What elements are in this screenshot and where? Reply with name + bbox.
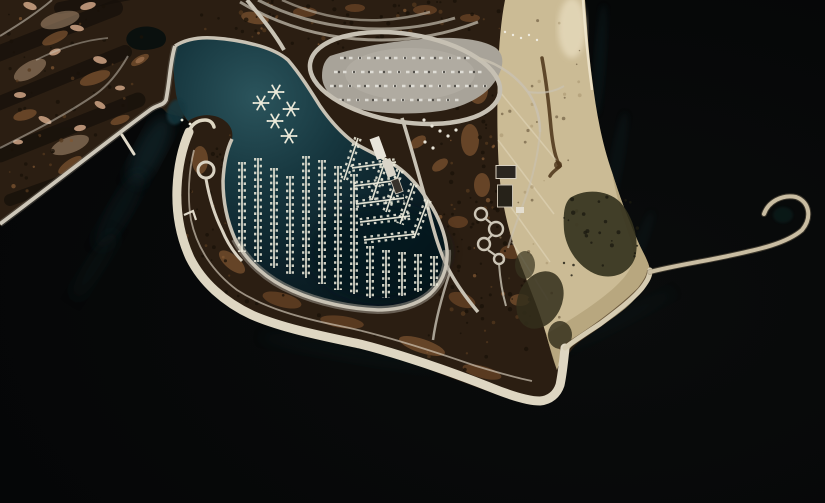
shrub-speckle [583,231,587,235]
vegetation-speckle [461,311,466,316]
sand-speckle [526,129,529,132]
vegetation-speckle [56,100,60,104]
vegetation-speckle [85,19,87,21]
vegetation-speckle [262,28,266,32]
shelter-dot [431,146,434,149]
vegetation-speckle [229,134,231,136]
vegetation-speckle [282,294,285,297]
vegetation-speckle [439,1,441,3]
star-dock-finger [283,108,285,110]
vegetation-speckle [196,208,198,210]
shelter-dot [422,118,425,121]
vegetation-speckle [18,108,22,112]
shrub-speckle [571,274,573,276]
vegetation-speckle [77,72,80,75]
vegetation-speckle [499,28,501,30]
beach-dot [528,34,530,36]
shrub-speckle [570,197,574,201]
beach-pavilion-1 [496,166,516,179]
vegetation-speckle [483,18,485,20]
sand-speckle [562,117,566,121]
vegetation-speckle [457,201,461,205]
shrub-speckle [582,212,586,216]
vegetation-speckle [381,16,383,18]
shrub-speckle [604,220,607,223]
vegetation-speckle [461,239,463,241]
vegetation-speckle [480,304,484,308]
sand-speckle [536,19,539,22]
vegetation-speckle [212,228,214,230]
star-dock-hub [289,107,292,110]
vegetation-speckle [51,66,54,69]
vegetation-speckle [427,1,431,5]
vegetation-speckle [497,9,501,13]
vegetation-speckle [112,63,114,65]
star-dock-hub [273,119,276,122]
sand-speckle [576,64,578,66]
vegetation-speckle [216,147,219,150]
beach-bright-patch [558,0,586,58]
vegetation-speckle [492,321,496,325]
sand-speckle [555,115,558,118]
vegetation-speckle [205,233,209,237]
star-dock-finger [284,129,286,131]
vegetation-speckle [439,10,443,14]
star-dock-hub [259,101,262,104]
vegetation-speckle [484,330,486,332]
vegetation-speckle [451,213,454,216]
vegetation-speckle [321,36,325,40]
vegetation-speckle [397,12,399,14]
vegetation-speckle [31,92,33,94]
shrub-speckle [610,243,614,247]
vegetation-speckle [251,36,253,38]
star-dock-finger [256,108,258,110]
vegetation-speckle [55,114,58,117]
shrub-speckle [617,230,621,234]
sand-speckle [558,316,561,319]
vegetation-speckle [449,180,453,184]
vegetation-speckle [476,273,478,275]
vegetation-speckle [33,166,35,168]
vegetation-speckle [463,368,467,372]
vegetation-speckle [10,39,14,43]
vegetation-speckle [70,139,73,142]
shrub-speckle [563,217,565,219]
beach-pavilion-2 [498,185,513,207]
vegetation-speckle [443,213,445,215]
vegetation-speckle [97,10,99,12]
vegetation-speckle [205,244,208,247]
sand-speckle [563,93,566,96]
vegetation-speckle [306,4,310,8]
star-dock-finger [270,114,272,116]
star-dock-finger [286,114,288,116]
sand-speckle [501,113,504,116]
star-dock-finger [271,97,273,99]
vegetation-speckle [9,171,11,173]
vegetation-speckle [440,143,443,146]
vegetation-speckle [466,352,468,354]
star-dock-finger [281,135,283,137]
vegetation-speckle [524,347,528,351]
vegetation-speckle [235,27,238,30]
vegetation-speckle [447,225,449,227]
parking-light-center [345,48,475,100]
vegetation-speckle [224,259,227,262]
vegetation-speckle [108,85,112,89]
star-dock-finger [268,102,270,104]
vegetation-speckle [482,157,485,160]
vegetation-speckle [485,127,487,129]
vegetation-speckle [254,29,257,32]
shrub-speckle [568,219,570,221]
shrub-speckle [563,262,565,264]
star-dock-hub [274,90,277,93]
vegetation-speckle [131,83,134,86]
vegetation-speckle [24,56,26,58]
vegetation-speckle [489,135,492,138]
vegetation-speckle [11,148,14,151]
star-dock-finger [298,108,300,110]
vegetation-speckle [473,247,475,249]
vegetation-speckle [123,97,126,100]
sand-speckle [531,199,534,202]
star-dock-finger [267,120,269,122]
shelter-dot [446,134,449,137]
vegetation-speckle [470,13,474,17]
vegetation-speckle [428,334,430,336]
sand-speckle [579,50,580,51]
vegetation-speckle [25,176,28,179]
vegetation-speckle [489,293,492,296]
vegetation-speckle [490,286,492,288]
vegetation-speckle [496,208,500,212]
vegetation-speckle [426,352,428,354]
beach-pavilion-3 [516,207,524,213]
vegetation-speckle [346,13,349,16]
vegetation-speckle [468,28,471,31]
vegetation-speckle [485,142,488,145]
vegetation-speckle [343,22,346,25]
vegetation-speckle [490,201,493,204]
vegetation-speckle [485,124,487,126]
vegetation-speckle [470,226,473,229]
star-dock-finger [296,135,298,137]
star-dock-finger [278,114,280,116]
shrub-speckle [636,226,639,229]
vegetation-speckle [386,21,390,25]
shelter-dot [438,129,441,132]
vegetation-speckle [256,16,258,18]
vegetation-speckle [317,313,321,317]
vegetation-speckle [318,43,320,45]
vegetation-speckle [412,3,417,8]
vegetation-speckle [20,174,23,177]
vegetation-speckle [239,10,244,15]
vegetation-speckle [28,68,32,72]
vegetation-speckle [291,42,294,45]
vegetation-speckle [43,153,46,156]
vegetation-speckle [342,46,344,48]
satellite-image [0,0,825,503]
vegetation-speckle [481,317,484,320]
vegetation-speckle [140,35,144,39]
vegetation-speckle [466,189,470,193]
vegetation-speckle [508,307,512,311]
seaweed-blob [554,161,562,169]
vegetation-speckle [19,17,22,20]
vegetation-speckle [11,184,15,188]
sand-speckle [536,121,538,123]
point-veg-4 [515,251,535,279]
sand-speckle [530,125,533,128]
vegetation-speckle [454,208,456,210]
aerial-scene [0,0,825,503]
star-dock-finger [278,126,280,128]
vegetation-speckle [471,223,474,226]
rust-patch [474,173,490,197]
vegetation-speckle [466,322,468,324]
vegetation-speckle [523,280,525,282]
shrub-speckle [629,201,632,204]
vegetation-speckle [201,255,204,258]
vegetation-speckle [480,263,482,265]
vegetation-speckle [332,7,336,11]
vegetation-speckle [241,30,244,33]
shrub-speckle [572,264,575,267]
sand-speckle [578,93,582,97]
vegetation-speckle [475,201,478,204]
sand-speckle [524,141,527,144]
star-dock-finger [264,108,266,110]
shrub-speckle [634,252,636,254]
sand-speckle [517,202,519,204]
star-dock-finger [279,85,281,87]
star-dock-finger [294,102,296,104]
vegetation-speckle [511,298,513,300]
vegetation-speckle [260,27,262,29]
vegetation-speckle [453,233,456,236]
vegetation-speckle [457,265,461,269]
shrub-speckle [624,199,627,202]
vegetation-speckle [59,138,63,142]
star-dock-finger [292,129,294,131]
vegetation-speckle [481,120,485,124]
vegetation-speckle [493,208,495,210]
shrub-speckle [571,211,575,215]
beach-dot [520,37,522,39]
shelter-dot [423,140,426,143]
vegetation-speckle [492,94,494,96]
vegetation-speckle [204,28,207,31]
sand-speckle [558,22,561,25]
shrub-speckle [636,245,638,247]
vegetation-speckle [398,5,400,7]
sand-speckle [499,236,501,238]
vegetation-speckle [403,9,406,12]
vegetation-speckle [450,171,454,175]
rust-patch [461,124,479,156]
vegetation-speckle [94,133,97,136]
star-dock-finger [271,85,273,87]
vegetation-speckle [224,222,226,224]
vegetation-speckle [13,51,15,53]
sand-speckle [567,159,569,161]
shrub-speckle [585,234,588,237]
shrub-speckle [605,196,608,199]
vegetation-speckle [9,67,12,70]
vegetation-speckle [493,145,496,148]
star-dock-finger [292,141,294,143]
vegetation-speckle [503,241,507,245]
vegetation-speckle [269,13,271,15]
vegetation-speckle [406,11,410,15]
vegetation-speckle [276,15,279,18]
vegetation-speckle [216,156,218,158]
star-dock-hub [287,134,290,137]
vegetation-speckle [8,14,10,16]
vegetation-speckle [337,42,339,44]
vegetation-speckle [450,307,454,311]
vegetation-speckle [217,17,220,20]
vegetation-speckle [486,341,488,343]
star-dock-finger [294,114,296,116]
vegetation-speckle [457,270,460,273]
vegetation-speckle [200,13,203,16]
star-dock-finger [264,96,266,98]
sand-speckle [564,97,566,99]
vegetation-speckle [478,135,482,139]
anchored-boat [181,119,184,122]
vegetation-speckle [26,189,29,192]
sand-speckle [577,80,580,83]
vegetation-speckle [50,47,52,49]
vegetation-speckle [436,1,438,3]
vegetation-speckle [481,151,485,155]
vegetation-speckle [480,297,482,299]
vegetation-speckle [484,355,488,359]
vegetation-speckle [496,226,499,229]
vegetation-speckle [222,256,225,259]
vegetation-speckle [237,295,240,298]
vegetation-speckle [49,163,52,166]
vegetation-speckle [121,104,124,107]
vegetation-speckle [427,355,431,359]
shrub-speckle [611,240,613,242]
shrub-speckle [598,200,601,203]
sand-trap [14,92,26,98]
sand-speckle [524,191,527,194]
vegetation-speckle [508,292,512,296]
vegetation-speckle [79,23,81,25]
shrub-speckle [602,264,604,266]
sand-speckle [543,180,544,181]
sand-speckle [530,185,534,189]
vegetation-speckle [465,309,469,313]
star-dock-finger [279,97,281,99]
vegetation-speckle [307,38,309,40]
vegetation-speckle [473,274,476,277]
sand-speckle [508,110,511,113]
vegetation-speckle [450,140,452,142]
shrub-speckle [590,242,592,244]
sand-speckle [546,262,549,265]
vegetation-speckle [460,332,462,334]
spiral-pocket-glow [773,207,793,223]
vegetation-speckle [470,197,472,199]
vegetation-speckle [486,198,490,202]
sand-speckle [531,85,534,88]
vegetation-speckle [51,151,53,153]
vegetation-speckle [211,152,215,156]
vegetation-speckle [228,275,230,277]
shelter-dot [454,128,457,131]
vegetation-speckle [451,204,453,206]
vegetation-speckle [504,250,506,252]
sand-trap [115,86,125,91]
star-dock-finger [256,96,258,98]
star-dock-finger [284,141,286,143]
vegetation-speckle [393,4,397,8]
beach-dot [512,34,514,36]
shelter-dot [430,124,433,127]
vegetation-speckle [211,259,213,261]
vegetation-speckle [44,70,46,72]
vegetation-speckle [380,34,384,38]
star-dock-finger [270,126,272,128]
vegetation-speckle [457,250,459,252]
sand-speckle [508,277,510,279]
rust-patch [345,4,365,12]
star-dock-finger [282,120,284,122]
vegetation-speckle [482,165,486,169]
vegetation-speckle [71,77,75,81]
vegetation-speckle [219,153,221,155]
vegetation-speckle [450,162,453,165]
beach-dot [536,39,538,41]
vegetation-speckle [257,32,260,35]
vegetation-speckle [457,246,459,248]
sand-speckle [538,80,541,83]
shrub-speckle [598,231,601,234]
vegetation-speckle [16,80,19,83]
vegetation-speckle [450,285,454,289]
vegetation-speckle [439,293,442,296]
star-dock-finger [253,102,255,104]
star-dock-finger [286,102,288,104]
vegetation-speckle [24,162,28,166]
rust-patch [448,216,468,228]
star-dock-finger [268,91,270,93]
anchored-boat [189,123,192,126]
vegetation-speckle [225,290,228,293]
beach-dot [504,31,506,33]
vegetation-speckle [37,136,39,138]
vegetation-speckle [468,246,472,250]
vegetation-speckle [350,21,354,25]
sand-speckle [500,133,504,137]
shrub-speckle [633,255,635,257]
vegetation-speckle [23,107,26,110]
star-dock-finger [283,91,285,93]
vegetation-speckle [102,5,105,8]
vegetation-speckle [245,299,249,303]
vegetation-speckle [441,17,443,19]
vegetation-speckle [212,245,216,249]
sand-speckle [533,243,535,245]
vegetation-speckle [93,92,95,94]
